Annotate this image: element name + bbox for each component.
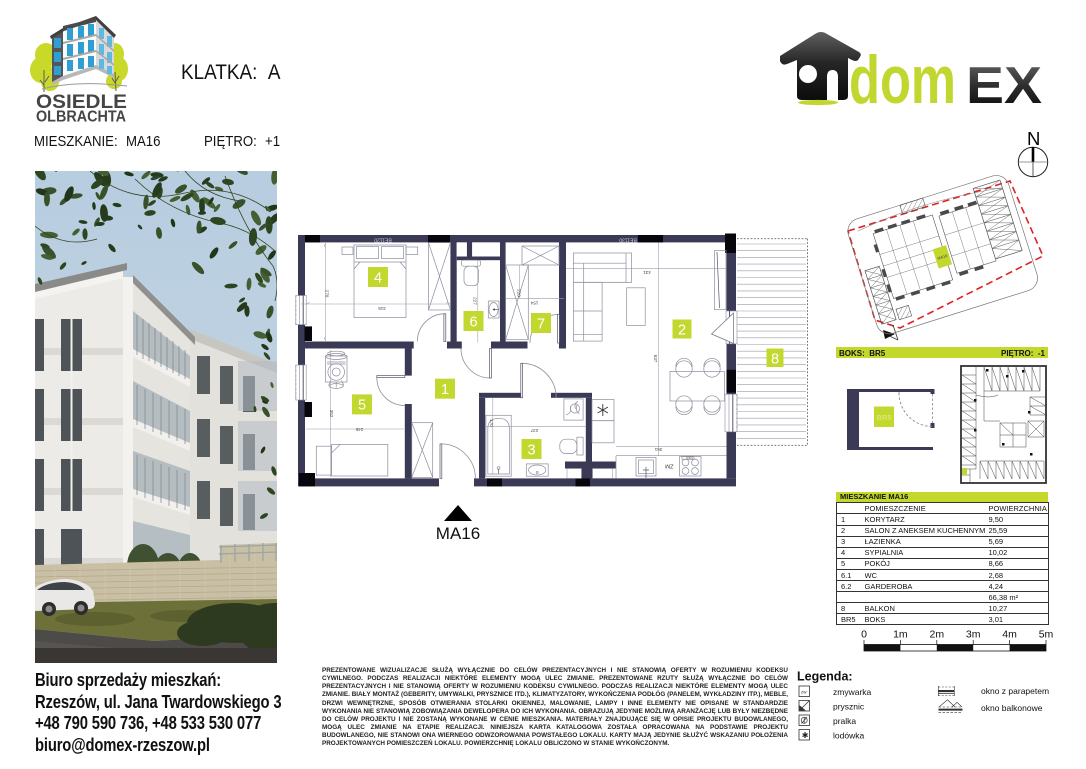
svg-text:352: 352 — [329, 410, 334, 418]
svg-text:0: 0 — [861, 629, 867, 641]
svg-text:5: 5 — [358, 398, 366, 414]
svg-text:pralka: pralka — [833, 716, 856, 726]
svg-text:dom: dom — [849, 42, 956, 110]
svg-text:Legenda:: Legenda: — [797, 670, 853, 684]
svg-text:2: 2 — [678, 322, 686, 338]
svg-text:BE1130: BE1130 — [619, 236, 637, 242]
svg-text:245: 245 — [355, 427, 363, 432]
svg-text:zw: zw — [801, 690, 807, 695]
svg-text:0000: 0000 — [686, 456, 693, 460]
svg-text:BE1120: BE1120 — [374, 236, 392, 242]
svg-text:ZM: ZM — [665, 463, 674, 469]
svg-text:zmywarka: zmywarka — [833, 687, 872, 697]
svg-text:3m: 3m — [966, 629, 981, 641]
svg-text:220: 220 — [516, 289, 521, 297]
svg-text:6: 6 — [469, 314, 477, 330]
svg-text:okno z parapetem: okno z parapetem — [981, 686, 1049, 696]
svg-text:prysznic: prysznic — [833, 702, 865, 712]
svg-text:154: 154 — [530, 300, 538, 305]
svg-text:✱: ✱ — [802, 731, 809, 740]
svg-text:4: 4 — [374, 270, 382, 286]
svg-text:EX: EX — [966, 57, 1042, 110]
svg-text:270: 270 — [325, 290, 330, 298]
svg-text:5m: 5m — [1039, 629, 1054, 641]
svg-text:OLBRACHTA: OLBRACHTA — [36, 109, 126, 126]
svg-text:2m: 2m — [930, 629, 945, 641]
svg-text:637: 637 — [653, 355, 658, 363]
svg-text:lodówka: lodówka — [833, 731, 864, 741]
svg-text:3: 3 — [527, 442, 535, 458]
svg-text:170: 170 — [489, 419, 494, 427]
svg-text:361: 361 — [654, 447, 662, 452]
svg-text:315: 315 — [378, 306, 386, 311]
svg-text:1: 1 — [441, 382, 449, 398]
svg-text:431: 431 — [643, 270, 651, 275]
svg-text:N: N — [1027, 128, 1040, 149]
svg-text:8: 8 — [771, 351, 779, 367]
svg-text:7: 7 — [537, 316, 545, 332]
svg-text:237: 237 — [530, 428, 538, 433]
svg-text:4m: 4m — [1002, 629, 1017, 641]
svg-text:BR5: BR5 — [876, 413, 891, 422]
svg-text:okno balkonowe: okno balkonowe — [981, 703, 1043, 713]
svg-text:1m: 1m — [893, 629, 908, 641]
svg-text:227: 227 — [473, 297, 478, 305]
